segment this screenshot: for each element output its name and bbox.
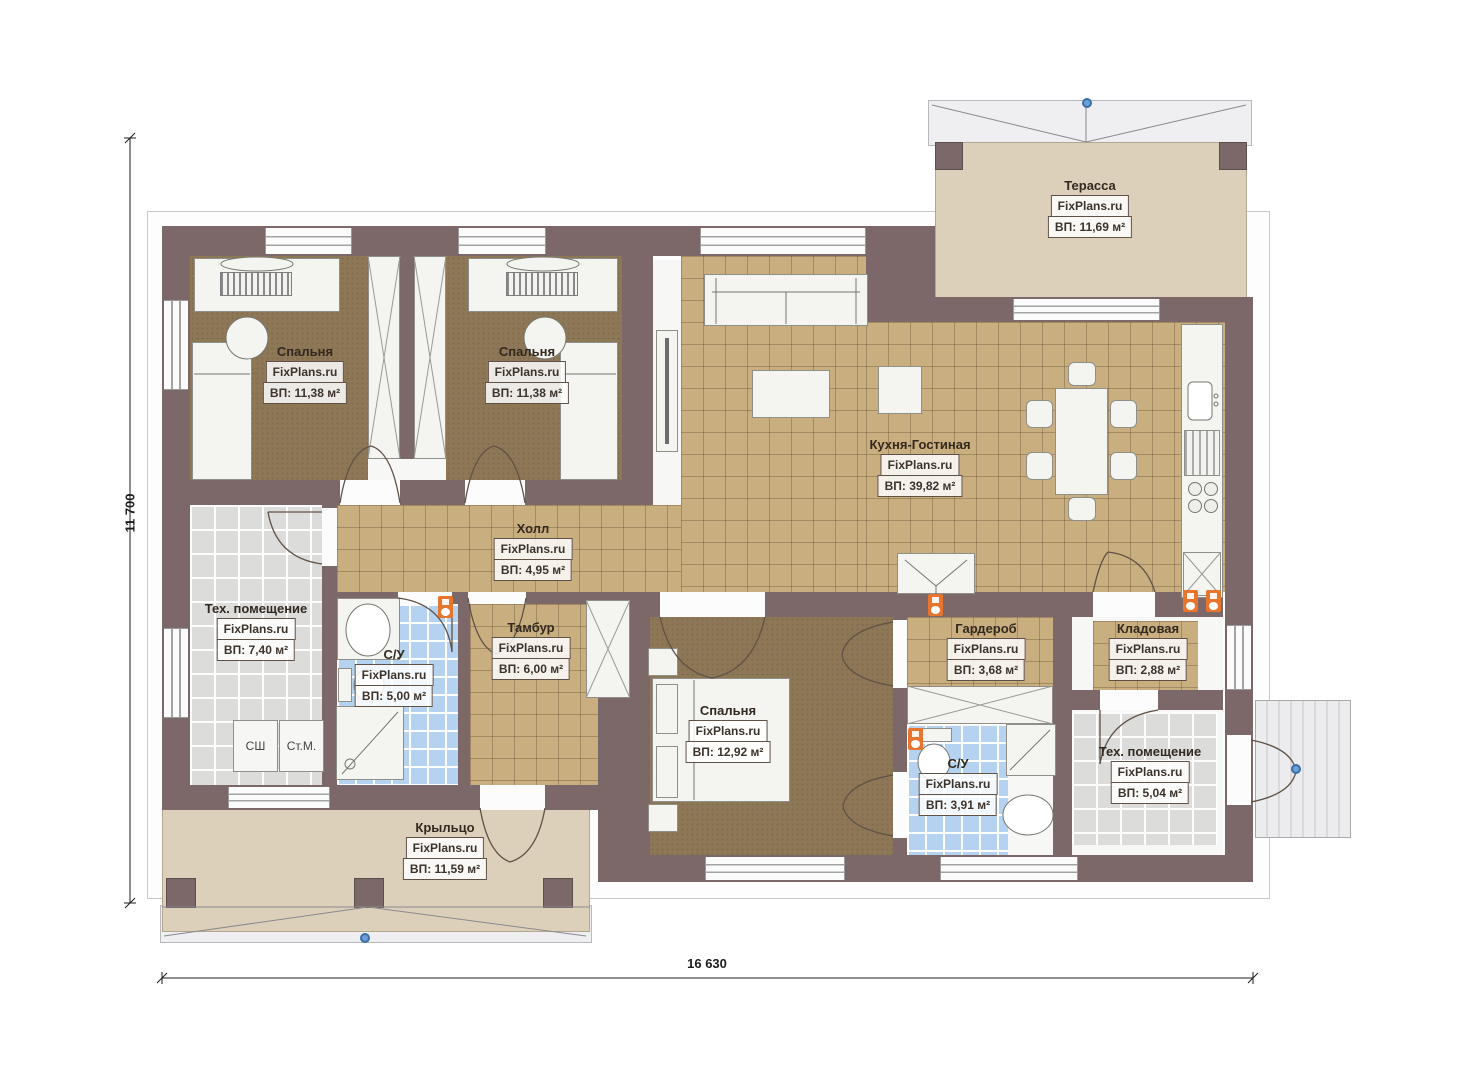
door-gap-su-bottom bbox=[893, 772, 907, 838]
window-bedroom3 bbox=[705, 857, 845, 880]
dryer-label: СШ bbox=[246, 739, 266, 753]
room-name: Гардероб bbox=[955, 621, 1016, 636]
door-gap-tech-left bbox=[322, 508, 337, 566]
door-gap-tambur bbox=[468, 592, 526, 604]
door-gap-storage bbox=[1093, 592, 1155, 617]
room-area: ВП: 7,40 м² bbox=[217, 639, 295, 661]
room-brand: FixPlans.ru bbox=[689, 720, 768, 742]
wall-bedroom2-east bbox=[622, 226, 653, 505]
dining-table bbox=[1055, 388, 1108, 495]
dining-chair bbox=[1026, 400, 1053, 428]
room-brand: FixPlans.ru bbox=[494, 538, 573, 560]
room-label-hall: Холл FixPlans.ru ВП: 4,95 м² bbox=[494, 521, 573, 581]
door-gap-bedroom3 bbox=[660, 592, 765, 617]
dining-chair bbox=[1110, 400, 1137, 428]
door-gap-entrance bbox=[480, 785, 545, 810]
door-gap-tech-right bbox=[1100, 690, 1158, 710]
window-tech-left-south bbox=[228, 787, 330, 808]
room-area: ВП: 3,91 м² bbox=[919, 794, 997, 816]
room-label-terrace: Терасса FixPlans.ru ВП: 11,69 м² bbox=[1048, 178, 1132, 238]
room-name: Крыльцо bbox=[415, 820, 474, 835]
room-label-bedroom2: Спальня FixPlans.ru ВП: 11,38 м² bbox=[485, 344, 569, 404]
room-label-bedroom3: Спальня FixPlans.ru ВП: 12,92 м² bbox=[686, 703, 771, 763]
door-gap-wardrobe bbox=[893, 620, 907, 688]
room-label-storage: Кладовая FixPlans.ru ВП: 2,88 м² bbox=[1109, 621, 1188, 681]
boiler-icon bbox=[908, 728, 923, 750]
room-name: Терасса bbox=[1064, 178, 1116, 193]
dimension-width-value: 16 630 bbox=[687, 956, 727, 971]
porch-pillar-mid bbox=[354, 878, 384, 908]
axis-marker-icon bbox=[360, 933, 370, 943]
washer-box: Ст.М. bbox=[279, 720, 324, 772]
room-brand: FixPlans.ru bbox=[217, 618, 296, 640]
room-brand: FixPlans.ru bbox=[1109, 638, 1188, 660]
window-storage bbox=[1227, 625, 1251, 690]
room-name: Кухня-Гостиная bbox=[869, 437, 970, 452]
armchair bbox=[878, 366, 922, 414]
door-gap-side-exit bbox=[1227, 735, 1251, 805]
su-bottom-shower bbox=[1006, 724, 1056, 776]
tv-screen bbox=[665, 338, 669, 444]
window-living bbox=[700, 228, 866, 254]
door-gap-bedroom1 bbox=[340, 480, 400, 505]
dining-chair bbox=[1068, 497, 1096, 521]
fireplace-hood bbox=[897, 553, 975, 594]
room-brand: FixPlans.ru bbox=[492, 637, 571, 659]
nightstand bbox=[648, 804, 678, 832]
terrace-pillar-right bbox=[1219, 142, 1247, 170]
room-name: Тех. помещение bbox=[1099, 744, 1202, 759]
terrace-sliding-door bbox=[1013, 299, 1160, 320]
bed-pillow bbox=[656, 684, 678, 734]
side-entry-landing bbox=[1255, 700, 1351, 838]
room-name: С/У bbox=[383, 647, 404, 662]
window-bedroom1-side bbox=[164, 300, 188, 390]
room-name: Спальня bbox=[700, 703, 756, 718]
room-label-su-bottom: С/У FixPlans.ru ВП: 3,91 м² bbox=[919, 756, 998, 816]
room-brand: FixPlans.ru bbox=[881, 454, 960, 476]
room-brand: FixPlans.ru bbox=[1111, 761, 1190, 783]
room-area: ВП: 4,95 м² bbox=[494, 559, 572, 581]
door-gap-bedroom2 bbox=[465, 480, 525, 505]
wall-closet-mid bbox=[400, 256, 414, 459]
boiler-icon bbox=[438, 596, 453, 618]
boiler-icon bbox=[1206, 590, 1221, 612]
bed-pillow bbox=[656, 746, 678, 798]
room-label-wardrobe: Гардероб FixPlans.ru ВП: 3,68 м² bbox=[947, 621, 1026, 681]
su-left-toilet-tank bbox=[338, 668, 352, 702]
terrace-pillar-left bbox=[935, 142, 963, 170]
room-brand: FixPlans.ru bbox=[1051, 195, 1130, 217]
room-brand: FixPlans.ru bbox=[406, 837, 485, 859]
wall-bedrooms-south bbox=[190, 480, 628, 505]
room-label-bedroom1: Спальня FixPlans.ru ВП: 11,38 м² bbox=[263, 344, 347, 404]
wall-su-tambur bbox=[458, 592, 470, 785]
room-brand: FixPlans.ru bbox=[266, 361, 345, 383]
room-brand: FixPlans.ru bbox=[947, 638, 1026, 660]
room-area: ВП: 11,38 м² bbox=[263, 382, 347, 404]
window-su-bottom bbox=[940, 857, 1078, 880]
room-brand: FixPlans.ru bbox=[355, 664, 434, 686]
room-name: Тамбур bbox=[507, 620, 554, 635]
dishwasher bbox=[1184, 430, 1220, 476]
room-area: ВП: 11,69 м² bbox=[1048, 216, 1132, 238]
room-name: С/У bbox=[947, 756, 968, 771]
closet-left bbox=[368, 256, 400, 459]
room-area: ВП: 39,82 м² bbox=[878, 475, 963, 497]
dining-chair bbox=[1026, 452, 1053, 480]
window-tech-left bbox=[164, 628, 188, 718]
room-name: Кладовая bbox=[1117, 621, 1179, 636]
room-brand: FixPlans.ru bbox=[488, 361, 567, 383]
room-name: Спальня bbox=[277, 344, 333, 359]
room-name: Тех. помещение bbox=[205, 601, 308, 616]
dining-chair bbox=[1110, 452, 1137, 480]
bedroom2-radiator bbox=[506, 272, 578, 296]
room-area: ВП: 6,00 м² bbox=[492, 658, 570, 680]
room-label-kitchen: Кухня-Гостиная FixPlans.ru ВП: 39,82 м² bbox=[869, 437, 970, 497]
room-area: ВП: 11,59 м² bbox=[403, 858, 487, 880]
dryer-box: СШ bbox=[233, 720, 278, 772]
room-area: ВП: 12,92 м² bbox=[686, 741, 771, 763]
dining-chair bbox=[1068, 362, 1096, 386]
room-name: Холл bbox=[517, 521, 550, 536]
dimension-width: 16 630 bbox=[687, 956, 727, 971]
room-label-tambur: Тамбур FixPlans.ru ВП: 6,00 м² bbox=[492, 620, 571, 680]
closet-right bbox=[414, 256, 446, 459]
window-bedroom2 bbox=[458, 228, 546, 254]
bedroom1-bed bbox=[192, 342, 252, 480]
axis-marker-icon bbox=[1082, 98, 1092, 108]
boiler-icon bbox=[928, 594, 943, 616]
wall-bottom bbox=[598, 855, 1253, 882]
floor-plan-canvas: СШ Ст.М. bbox=[0, 0, 1474, 1080]
boiler-icon bbox=[1183, 590, 1198, 612]
dimension-height-value: 11 700 bbox=[123, 493, 138, 532]
porch-pillar-left bbox=[166, 878, 196, 908]
su-left-shower bbox=[336, 706, 404, 780]
room-label-tech-right: Тех. помещение FixPlans.ru ВП: 5,04 м² bbox=[1099, 744, 1202, 804]
room-label-tech-left: Тех. помещение FixPlans.ru ВП: 7,40 м² bbox=[205, 601, 308, 661]
tambur-closet bbox=[586, 600, 630, 698]
bedroom1-radiator bbox=[220, 272, 292, 296]
room-brand: FixPlans.ru bbox=[919, 773, 998, 795]
room-area: ВП: 11,38 м² bbox=[485, 382, 569, 404]
window-bedroom1 bbox=[265, 228, 352, 254]
room-area: ВП: 2,88 м² bbox=[1109, 659, 1187, 681]
room-label-su-left: С/У FixPlans.ru ВП: 5,00 м² bbox=[355, 647, 434, 707]
room-area: ВП: 3,68 м² bbox=[947, 659, 1025, 681]
wardrobe-cabinet bbox=[907, 686, 1053, 724]
room-area: ВП: 5,00 м² bbox=[355, 685, 433, 707]
coffee-table bbox=[752, 370, 830, 418]
wall-kitchen-jog bbox=[866, 226, 935, 322]
nightstand bbox=[648, 648, 678, 676]
room-label-porch: Крыльцо FixPlans.ru ВП: 11,59 м² bbox=[403, 820, 487, 880]
washer-label: Ст.М. bbox=[287, 739, 317, 753]
sofa bbox=[704, 274, 868, 326]
room-name: Спальня bbox=[499, 344, 555, 359]
axis-marker-icon bbox=[1291, 764, 1301, 774]
dimension-height: 11 700 bbox=[123, 493, 138, 532]
porch-pillar-right bbox=[543, 878, 573, 908]
porch-slab bbox=[162, 808, 590, 932]
room-area: ВП: 5,04 м² bbox=[1111, 782, 1189, 804]
